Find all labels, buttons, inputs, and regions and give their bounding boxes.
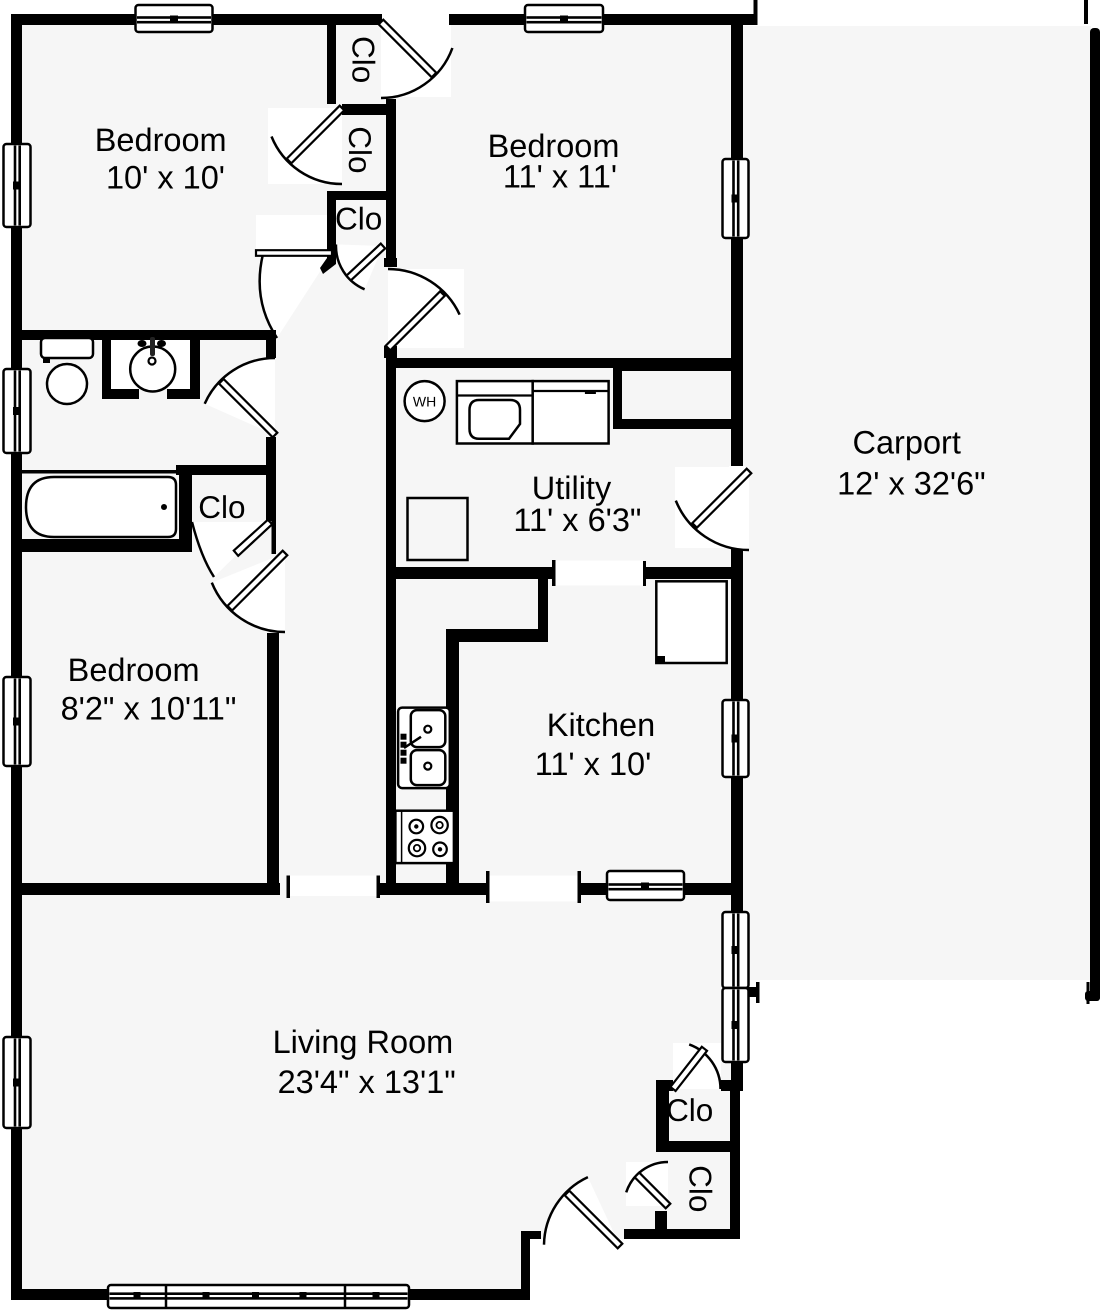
svg-text:Clo: Clo [342,126,378,173]
svg-text:8'2" x 10'11": 8'2" x 10'11" [61,691,237,727]
svg-text:Bedroom: Bedroom [68,652,200,688]
svg-text:23'4" x 13'1": 23'4" x 13'1" [278,1064,456,1100]
svg-text:Clo: Clo [682,1165,718,1212]
svg-text:11' x 6'3": 11' x 6'3" [513,502,641,538]
svg-text:Clo: Clo [198,489,245,525]
svg-text:Utility: Utility [532,470,612,506]
svg-text:Carport: Carport [853,425,961,461]
svg-text:WH: WH [413,394,436,410]
svg-text:10' x 10': 10' x 10' [106,160,225,196]
svg-text:Kitchen: Kitchen [547,707,655,743]
svg-text:12' x 32'6": 12' x 32'6" [837,466,986,502]
svg-text:Living Room: Living Room [273,1024,454,1060]
svg-text:Clo: Clo [335,201,382,237]
svg-text:Clo: Clo [666,1092,713,1128]
svg-text:11' x 10': 11' x 10' [535,746,652,782]
svg-text:Bedroom: Bedroom [95,122,227,158]
svg-text:11' x 11': 11' x 11' [503,159,617,195]
svg-text:Clo: Clo [346,36,382,83]
